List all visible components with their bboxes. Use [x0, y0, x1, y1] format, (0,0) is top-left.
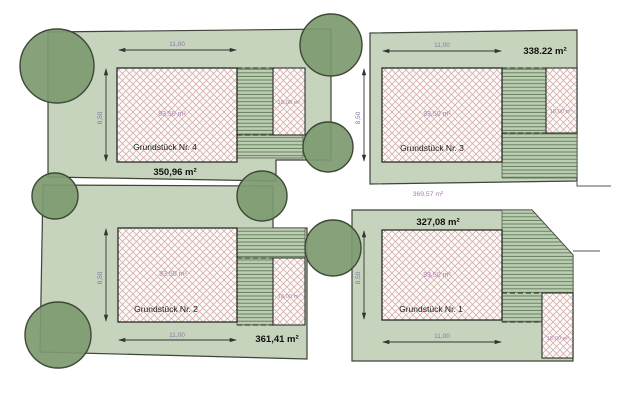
plot-4-depth-dimension: 8,50	[97, 111, 104, 124]
tree-icon	[300, 14, 362, 76]
site-plan-canvas: 11,00 8,50 11,00 8,50 11,00 8,50 11,00 8…	[0, 0, 617, 400]
plot-4-width-dimension: 11,00	[169, 41, 185, 48]
plot-2-depth-dimension: 8,50	[97, 271, 104, 284]
plot-1-area-label: 327,08 m²	[416, 217, 459, 228]
plot-3-area-label: 338.22 m²	[523, 46, 566, 57]
plot-2-width-dimension: 11,00	[169, 332, 185, 339]
plot-4-name-label: Grundstück Nr. 4	[133, 142, 197, 152]
plot-2-area-label: 361,41 m²	[255, 334, 298, 345]
plot-1-house-area-label: 93,50 m²	[423, 272, 451, 279]
boundary-line-right-upper	[577, 181, 611, 186]
plot-1-width-dimension: 11,00	[434, 333, 450, 340]
tree-icon	[25, 302, 91, 368]
tree-icon	[32, 173, 78, 219]
plot-4-area-label: 350,96 m²	[153, 167, 196, 178]
plot-4-garage-area-label: 18,00 m²	[278, 100, 301, 106]
plot-3-garage-footprint	[546, 68, 577, 133]
plot-3-name-label: Grundstück Nr. 3	[400, 143, 464, 153]
plot-3-garage-area-label: 18,00 m²	[550, 109, 573, 115]
plot-2-house-area-label: 93,50 m²	[159, 271, 187, 278]
plot-2-garage-footprint	[273, 258, 305, 325]
tree-icon	[305, 220, 361, 276]
plot-4-house-area-label: 93,50 m²	[158, 111, 186, 118]
plot-3-house-area-label: 93,50 m²	[423, 111, 451, 118]
plot-1-name-label: Grundstück Nr. 1	[399, 304, 463, 314]
tree-icon	[303, 122, 353, 172]
tree-icon	[20, 29, 94, 103]
plot-3-depth-dimension: 8,50	[355, 111, 362, 124]
plot-2-name-label: Grundstück Nr. 2	[134, 304, 198, 314]
plot-2-garage-area-label: 18,00 m²	[278, 294, 301, 300]
access-area-label: 369,57 m²	[413, 191, 444, 198]
plot-1-garage-area-label: 18,00 m²	[547, 336, 570, 342]
tree-icon	[237, 171, 287, 221]
plot-3-width-dimension: 11,00	[434, 42, 450, 49]
plot-1-garage-footprint	[542, 293, 573, 358]
plot-1-depth-dimension: 8,50	[355, 271, 362, 284]
site-plan-drawing: 11,00 8,50 11,00 8,50 11,00 8,50 11,00 8…	[0, 0, 617, 400]
